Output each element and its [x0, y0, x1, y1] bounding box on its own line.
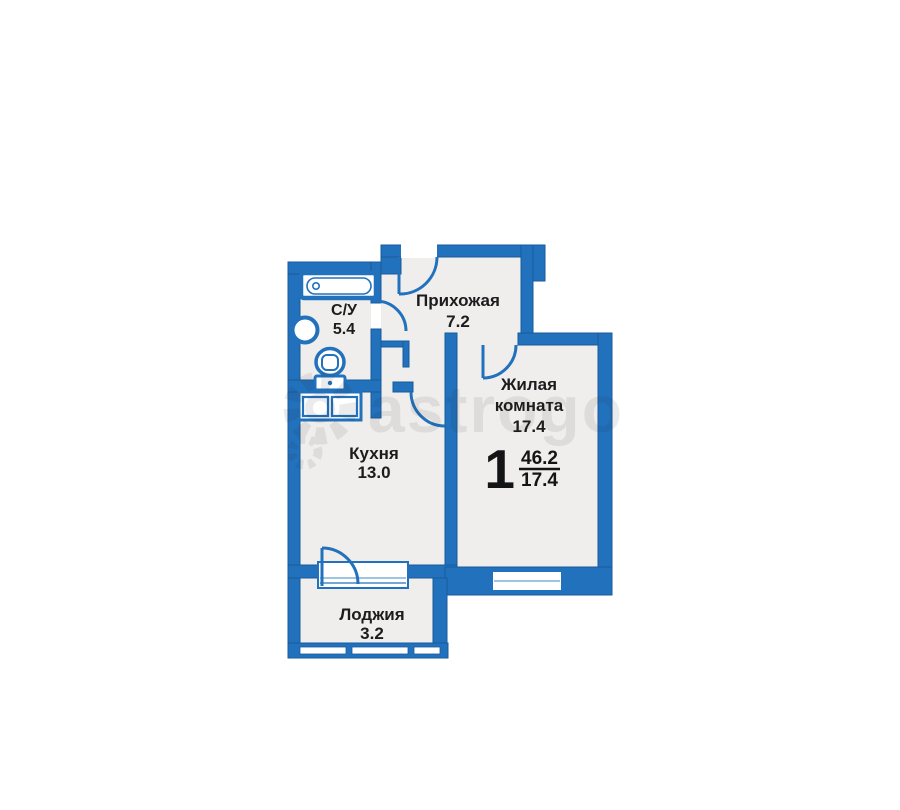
loggia-glazing-3: [414, 647, 440, 654]
hallway-niche-wall-v: [403, 341, 409, 367]
floor-plan-svg: С/У 5.4 Прихожая 7.2 Жилая комната 17.4 …: [0, 0, 900, 810]
watermark-text: astrogo: [368, 372, 624, 446]
summary-living-area: 17.4: [521, 470, 558, 491]
loggia-glazing-2: [352, 647, 408, 654]
kitchen-label: Кухня: [349, 444, 399, 463]
apartment-summary: 1 46.2 17.4: [484, 438, 560, 500]
entry-door-opening: [401, 244, 437, 258]
hallway-area: 7.2: [446, 312, 470, 331]
bathroom-label: С/У: [331, 302, 358, 319]
floor-plan-image: С/У 5.4 Прихожая 7.2 Жилая комната 17.4 …: [0, 0, 900, 810]
kitchen-area: 13.0: [357, 463, 390, 482]
washbasin-icon: [293, 318, 318, 343]
loggia-glazing-1: [300, 647, 346, 654]
kitchen-living-divider-wall: [445, 333, 457, 578]
summary-total-area: 46.2: [521, 448, 558, 469]
hallway-label: Прихожая: [416, 291, 500, 310]
hallway-right-wall: [521, 245, 533, 345]
loggia-label: Лоджия: [339, 605, 404, 624]
bathroom-area: 5.4: [333, 321, 355, 338]
summary-rooms-count: 1: [484, 438, 515, 500]
bathtub-icon: [301, 273, 376, 298]
loggia-area: 3.2: [360, 624, 384, 643]
kitchen-window: [318, 562, 408, 588]
